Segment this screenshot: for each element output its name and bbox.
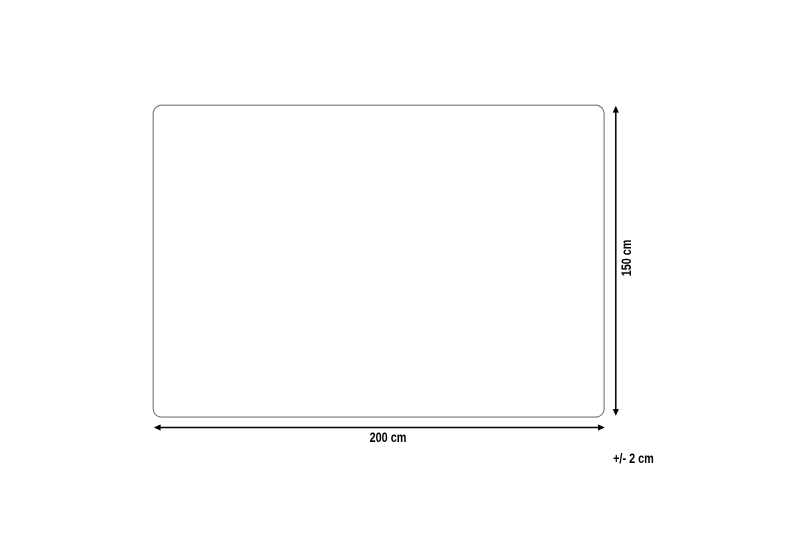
svg-text:200 cm: 200 cm [370,430,407,445]
svg-text:+/- 2 cm: +/- 2 cm [613,451,654,466]
svg-text:150 cm: 150 cm [619,240,634,277]
